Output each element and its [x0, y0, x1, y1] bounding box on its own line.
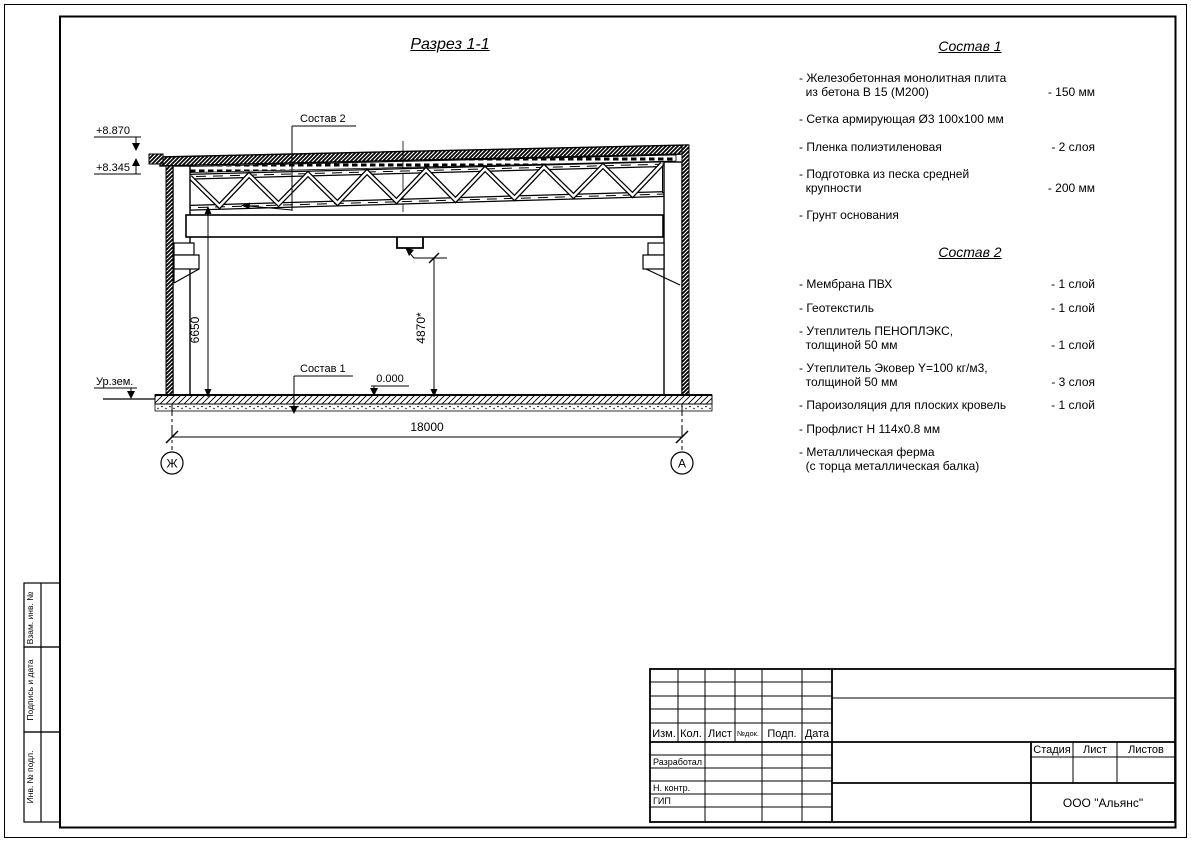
spec2-item: - Геотекстиль - 1 слой [799, 302, 1095, 316]
tb-sheets-col: Листов [1128, 744, 1164, 756]
spec-item-value: - 1 слой [1043, 302, 1095, 316]
spec-item-name: - Железобетонная монолитная плита из бет… [799, 72, 1006, 99]
tb-col-izm: Изм. [652, 728, 676, 740]
spec2-item: - Утеплитель Эковер Y=100 кг/м3, толщино… [799, 362, 1095, 389]
tb-col-list: Лист [708, 728, 732, 740]
spec2-item: - Металлическая ферма (с торца металличе… [799, 446, 1095, 473]
callout-sostav1-text: Состав 1 [300, 363, 346, 375]
right-wall-panel [682, 145, 689, 395]
level-zero-text: 0.000 [376, 373, 404, 385]
spec1-item: - Пленка полиэтиленовая - 2 слоя [799, 141, 1095, 155]
spec-item-value: - 2 слоя [1043, 141, 1095, 155]
tb-col-ndok: №док. [737, 729, 759, 738]
spec-item-value: - 3 слоя [1043, 376, 1095, 390]
tb-col-kol: Кол. [680, 728, 702, 740]
spec-list-sostav1: Состав 1 - Железобетонная монолитная пли… [799, 38, 1095, 237]
mid-bracket [397, 237, 423, 248]
spec2-title: Состав 2 [799, 244, 1095, 260]
spec1-item: - Железобетонная монолитная плита из бет… [799, 72, 1095, 99]
dimension-4870: 4870* [405, 247, 447, 397]
tb-stage-col: Стадия [1033, 744, 1071, 756]
tb-col-data: Дата [805, 728, 830, 740]
elevation-marks: +8.870 +8.345 [94, 125, 141, 174]
dim-6650-text: 6650 [188, 316, 202, 343]
spec-item-value: - 1 слой [1043, 339, 1095, 353]
spec2-item: - Профлист Н 114х0.8 мм [799, 423, 1095, 437]
section-drawing: 6650 4870* 0.000 +8.870 +8.345 [94, 113, 712, 474]
spec-item-name: - Пароизоляция для плоских кровель [799, 399, 1006, 413]
spec2-item: - Мембрана ПВХ - 1 слой [799, 278, 1095, 292]
tb-role-gip: ГИП [653, 796, 671, 806]
elev-8870-text: +8.870 [96, 125, 130, 137]
tb-company-name: ООО "Альянс" [1063, 796, 1143, 810]
spec-item-name: - Подготовка из песка средней крупности [799, 168, 969, 195]
spec1-item: - Грунт основания [799, 209, 1095, 223]
dim-4870-text: 4870* [414, 312, 428, 344]
axis-left-text: Ж [166, 457, 177, 471]
stamp-inv-label: Инв. № подл. [25, 751, 35, 804]
axis-right-text: А [678, 457, 686, 471]
stamp-vzam-label: Взам. инв. № [25, 592, 35, 645]
spec-item-name: - Мембрана ПВХ [799, 278, 892, 292]
ground-label-text: Ур.зем. [96, 376, 133, 388]
tb-sheet-col: Лист [1083, 744, 1107, 756]
spec-list-sostav2: Состав 2 - Мембрана ПВХ - 1 слой - Геоте… [799, 244, 1095, 483]
callout-sostav2-text: Состав 2 [300, 113, 346, 125]
dim-18000-text: 18000 [410, 420, 444, 434]
spec1-title: Состав 1 [799, 38, 1095, 54]
floor-slab [103, 395, 712, 411]
spec-item-name: - Геотекстиль [799, 302, 874, 316]
ground-level-mark: Ур.зем. [94, 376, 137, 399]
spec-item-name: - Утеплитель Эковер Y=100 кг/м3, толщино… [799, 362, 988, 389]
spec-item-name: - Сетка армирующая Ø3 100х100 мм [799, 113, 1004, 127]
elev-8345-text: +8.345 [96, 162, 130, 174]
tb-role-razrabotal: Разработал [653, 757, 702, 767]
stamp-podpis-label: Подпись и дата [25, 659, 35, 720]
left-wall-panel [166, 166, 173, 395]
crane-beam [174, 215, 680, 285]
spec2-item: - Пароизоляция для плоских кровель - 1 с… [799, 399, 1095, 413]
margin-stamp-labels: Взам. инв. № Подпись и дата Инв. № подл. [25, 592, 35, 804]
spec-item-value: - 150 мм [1040, 86, 1095, 100]
spec-item-name: - Профлист Н 114х0.8 мм [799, 423, 940, 437]
spec2-item: - Утеплитель ПЕНОПЛЭКС, толщиной 50 мм -… [799, 325, 1095, 352]
parapet-block [149, 154, 163, 164]
drawing-title: Разрез 1-1 [330, 36, 570, 54]
spec-item-name: - Утеплитель ПЕНОПЛЭКС, толщиной 50 мм [799, 325, 953, 352]
spec-item-name: - Грунт основания [799, 209, 899, 223]
drawing-sheet: Взам. инв. № Подпись и дата Инв. № подл. [0, 0, 1191, 842]
spec-item-name: - Металлическая ферма (с торца металличе… [799, 446, 979, 473]
tb-role-nkontr: Н. контр. [653, 783, 690, 793]
level-zero-mark: 0.000 [370, 373, 409, 396]
left-column [173, 166, 190, 395]
spec1-item: - Сетка армирующая Ø3 100х100 мм [799, 113, 1095, 127]
spec-item-name: - Пленка полиэтиленовая [799, 141, 942, 155]
spec-item-value: - 1 слой [1043, 278, 1095, 292]
spec1-item: - Подготовка из песка средней крупности … [799, 168, 1095, 195]
tb-col-podp: Подп. [767, 728, 796, 740]
grid-axes: Ж А [161, 452, 693, 474]
title-block-labels: Изм. Кол. Лист №док. Подп. Дата Разработ… [652, 728, 1164, 810]
spec-item-value: - 1 слой [1043, 399, 1095, 413]
spec-item-value: - 200 мм [1040, 182, 1095, 196]
